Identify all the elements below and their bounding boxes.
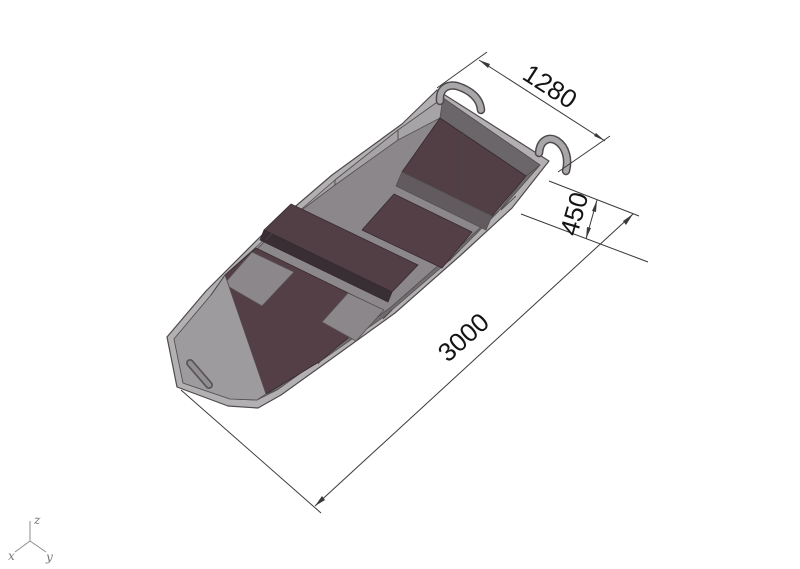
dimension-depth-arrow-bottom (586, 227, 591, 239)
dimension-length-extension-line (181, 390, 321, 513)
dimension-beam-arrow-right (594, 133, 605, 141)
boat-model (167, 86, 567, 408)
dimension-length-arrow-top (623, 214, 633, 225)
dimension-length-arrow-bottom (315, 496, 325, 506)
cad-viewport: 1280 450 3000 z x y (0, 0, 800, 569)
axis-z-label: z (33, 513, 41, 527)
dimension-depth: 450 (521, 181, 648, 262)
axis-triad: z x y (8, 513, 53, 564)
boat-technical-drawing: 1280 450 3000 z x y (0, 0, 800, 569)
dimension-beam-arrow-left (479, 60, 490, 68)
axis-y-line (30, 541, 46, 552)
axis-x-line (15, 541, 30, 552)
axis-y-label: y (45, 550, 53, 564)
dimension-length-value: 3000 (432, 307, 495, 368)
axis-x-label: x (8, 549, 15, 563)
